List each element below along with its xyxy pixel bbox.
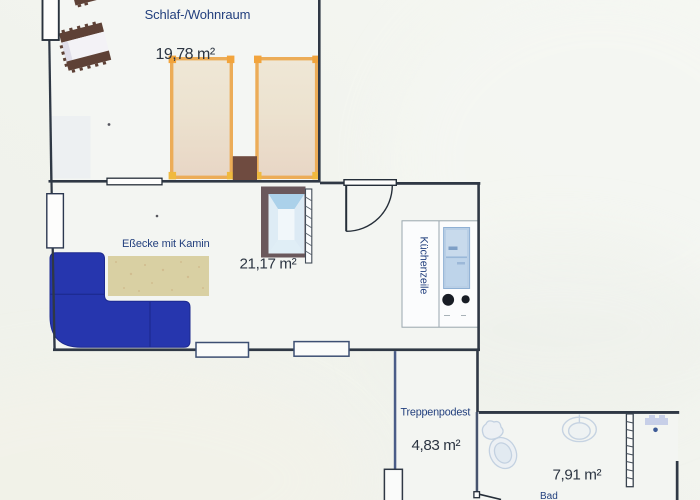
svg-text:4,83 m²: 4,83 m² [412, 437, 461, 454]
svg-text:Treppenpodest: Treppenpodest [401, 407, 471, 419]
svg-text:Schlaf-/Wohnraum: Schlaf-/Wohnraum [145, 7, 251, 22]
svg-text:Küchenzeile: Küchenzeile [418, 237, 430, 295]
svg-text:7,91 m²: 7,91 m² [553, 467, 602, 484]
svg-text:Eßecke mit Kamin: Eßecke mit Kamin [122, 238, 210, 250]
svg-text:19,78 m²: 19,78 m² [156, 46, 216, 63]
svg-text:21,17 m²: 21,17 m² [240, 256, 297, 273]
svg-text:Bad: Bad [540, 491, 558, 500]
